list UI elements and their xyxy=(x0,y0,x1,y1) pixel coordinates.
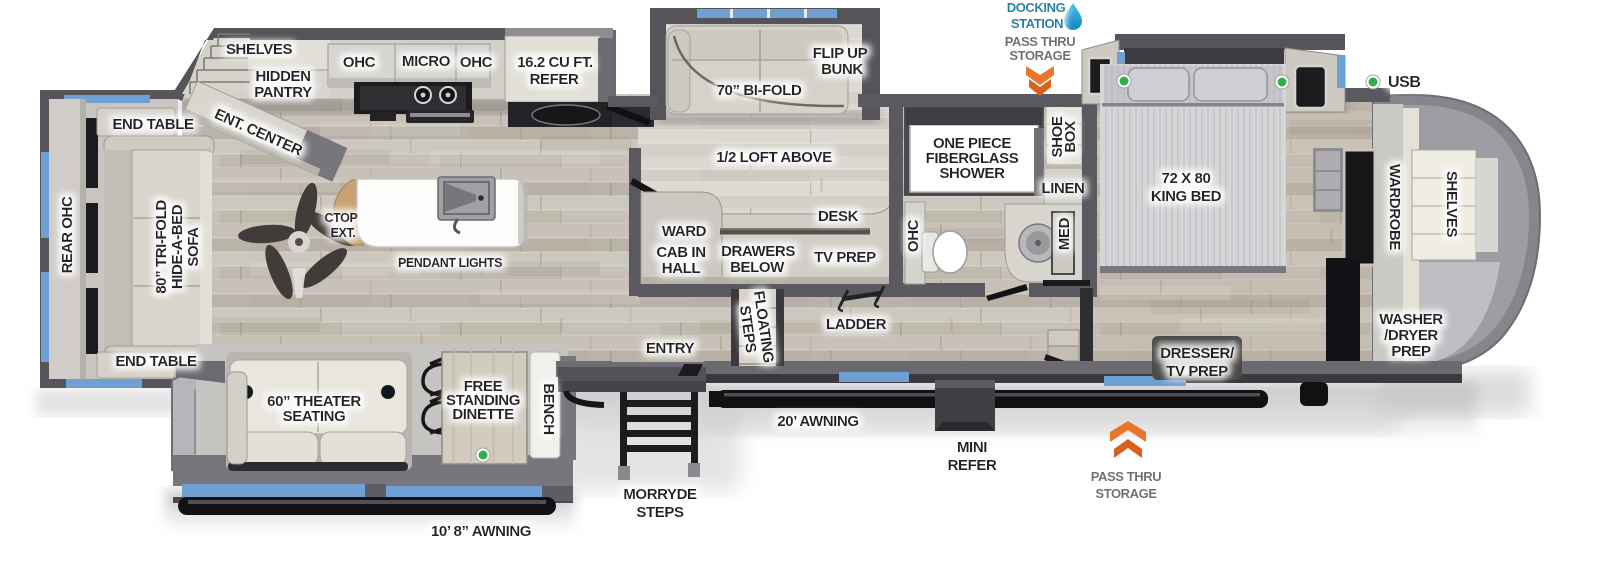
svg-text:OHC: OHC xyxy=(460,54,493,71)
svg-text:LADDER: LADDER xyxy=(826,316,887,333)
svg-text:PENDANT LIGHTS: PENDANT LIGHTS xyxy=(398,256,502,270)
svg-text:CTOP: CTOP xyxy=(325,211,358,225)
svg-text:DRESSER/: DRESSER/ xyxy=(1160,345,1235,362)
svg-text:END TABLE: END TABLE xyxy=(115,353,197,370)
svg-text:/DRYER: /DRYER xyxy=(1384,327,1438,344)
svg-text:1/2 LOFT ABOVE: 1/2 LOFT ABOVE xyxy=(716,149,832,166)
svg-text:MORRYDE: MORRYDE xyxy=(623,486,697,503)
svg-text:80” TRI-FOLD: 80” TRI-FOLD xyxy=(153,200,170,294)
svg-text:70” BI-FOLD: 70” BI-FOLD xyxy=(717,82,802,99)
svg-text:WASHER: WASHER xyxy=(1379,311,1443,328)
svg-text:SHOWER: SHOWER xyxy=(939,165,1005,182)
svg-text:SHELVES: SHELVES xyxy=(1443,171,1460,238)
svg-text:ENTRY: ENTRY xyxy=(646,340,695,357)
svg-text:OHC: OHC xyxy=(905,219,922,252)
svg-text:10’ 8” AWNING: 10’ 8” AWNING xyxy=(431,523,531,540)
svg-text:72 X 80: 72 X 80 xyxy=(1162,170,1211,187)
svg-text:MINI: MINI xyxy=(957,439,987,456)
svg-text:OHC: OHC xyxy=(343,54,376,71)
svg-text:PASS THRU: PASS THRU xyxy=(1091,469,1162,484)
svg-text:BUNK: BUNK xyxy=(821,61,863,78)
svg-text:EXT.: EXT. xyxy=(331,226,356,240)
svg-text:DRAWERS: DRAWERS xyxy=(721,243,795,260)
svg-text:REAR OHC: REAR OHC xyxy=(59,196,76,273)
svg-text:USB: USB xyxy=(1388,74,1421,91)
svg-text:TV PREP: TV PREP xyxy=(1166,363,1228,380)
svg-text:DESK: DESK xyxy=(818,208,859,225)
svg-text:BELOW: BELOW xyxy=(730,259,785,276)
svg-text:REFER: REFER xyxy=(530,71,579,88)
svg-text:STATION: STATION xyxy=(1011,16,1063,31)
svg-text:WARD: WARD xyxy=(662,223,707,240)
svg-text:PREP: PREP xyxy=(1391,343,1431,360)
svg-text:PASS THRU: PASS THRU xyxy=(1005,34,1076,49)
svg-text:20’ AWNING: 20’ AWNING xyxy=(777,413,858,430)
svg-text:FLIP UP: FLIP UP xyxy=(813,45,868,62)
svg-text:PANTRY: PANTRY xyxy=(254,84,312,101)
svg-text:CAB IN: CAB IN xyxy=(656,244,705,261)
svg-text:HIDDEN: HIDDEN xyxy=(255,68,310,85)
svg-text:16.2 CU FT.: 16.2 CU FT. xyxy=(517,54,593,71)
svg-text:KING BED: KING BED xyxy=(1151,188,1222,205)
svg-text:HALL: HALL xyxy=(662,260,701,277)
svg-text:SHELVES: SHELVES xyxy=(226,41,293,58)
svg-text:TV PREP: TV PREP xyxy=(814,249,876,266)
svg-text:END TABLE: END TABLE xyxy=(112,116,194,133)
svg-text:DINETTE: DINETTE xyxy=(452,406,514,423)
svg-text:SEATING: SEATING xyxy=(283,408,346,425)
svg-text:SOFA: SOFA xyxy=(185,227,202,267)
svg-text:LINEN: LINEN xyxy=(1041,180,1084,197)
svg-text:BENCH: BENCH xyxy=(540,383,557,434)
svg-text:MICRO: MICRO xyxy=(402,53,451,70)
svg-text:MED: MED xyxy=(1056,217,1073,250)
svg-text:HIDE-A-BED: HIDE-A-BED xyxy=(169,204,186,289)
svg-text:DOCKING: DOCKING xyxy=(1007,0,1066,15)
svg-text:STEPS: STEPS xyxy=(636,504,684,521)
svg-text:STORAGE: STORAGE xyxy=(1095,486,1157,501)
svg-text:STORAGE: STORAGE xyxy=(1009,48,1071,63)
svg-text:WARDROBE: WARDROBE xyxy=(1386,164,1403,250)
svg-text:BOX: BOX xyxy=(1062,121,1079,153)
svg-text:REFER: REFER xyxy=(948,457,997,474)
